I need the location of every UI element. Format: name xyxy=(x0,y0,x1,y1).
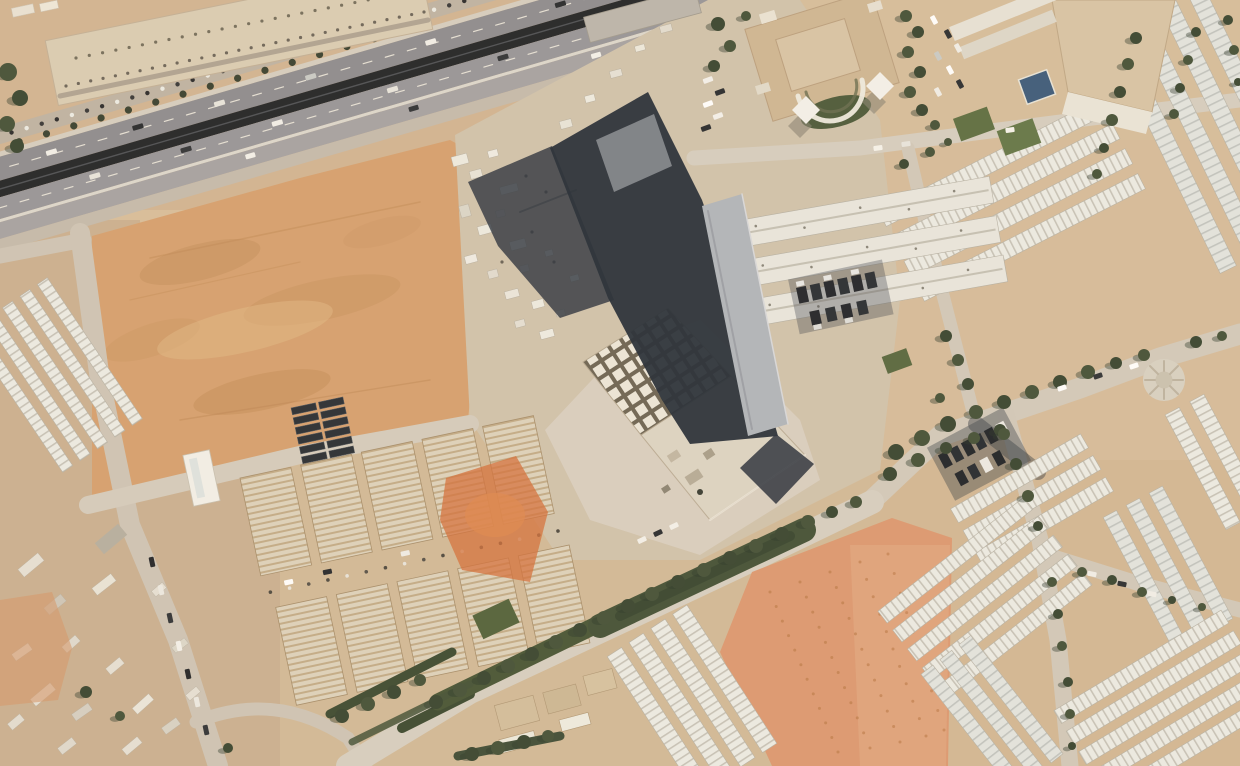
screenshot-root xyxy=(0,0,1240,766)
warm-light-overlay xyxy=(0,0,1240,766)
scene-root xyxy=(0,0,1240,766)
satellite-imagery-canvas xyxy=(0,0,1240,766)
